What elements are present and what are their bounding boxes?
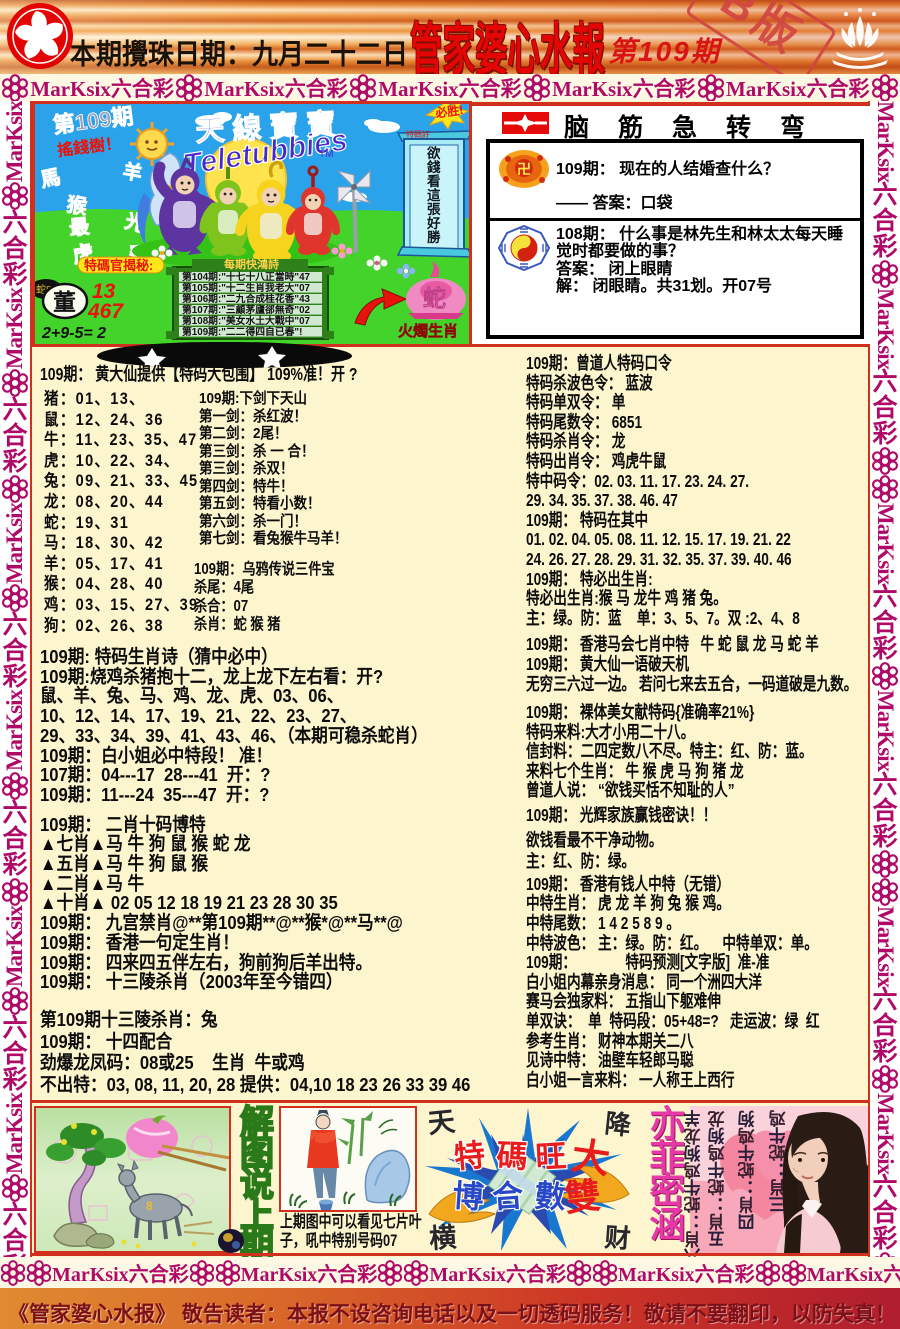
- svg-text:天: 天: [426, 1106, 456, 1139]
- svg-text:好: 好: [426, 215, 441, 231]
- svg-text:第106期:"二九合成桂花香"43: 第106期:"二九合成桂花香"43: [182, 292, 311, 305]
- svg-text:勝: 勝: [427, 229, 441, 245]
- svg-text:第108期:"美女水土大戰中"07: 第108期:"美女水土大戰中"07: [182, 314, 311, 327]
- svg-text:TM: TM: [319, 149, 333, 160]
- svg-text:特碼官揭秘:: 特碼官揭秘:: [84, 258, 153, 273]
- svg-text:最: 最: [68, 215, 91, 240]
- svg-text:第109期:"二二得四自已春"!: 第109期:"二二得四自已春"!: [182, 325, 302, 338]
- svg-text:财: 财: [604, 1222, 632, 1253]
- svg-text:旺: 旺: [535, 1138, 568, 1175]
- svg-text:合: 合: [491, 1178, 524, 1215]
- svg-text:2+9-5= 2: 2+9-5= 2: [41, 325, 106, 342]
- svg-text:數: 數: [534, 1178, 567, 1215]
- svg-text:錢: 錢: [427, 159, 441, 175]
- svg-text:欲: 欲: [426, 145, 441, 161]
- svg-text:雙: 雙: [563, 1174, 603, 1219]
- svg-text:特碼好: 特碼好: [406, 129, 430, 139]
- svg-text:特: 特: [453, 1137, 487, 1175]
- svg-text:8: 8: [146, 1199, 153, 1213]
- svg-text:每期快鴻詩: 每期快鴻詩: [224, 257, 279, 271]
- svg-text:卍: 卍: [517, 161, 531, 177]
- svg-text:張: 張: [427, 202, 441, 217]
- svg-text:這: 這: [427, 187, 441, 203]
- svg-text:看: 看: [426, 173, 441, 189]
- svg-text:第105期:"十二生肖我老大"07: 第105期:"十二生肖我老大"07: [182, 281, 311, 294]
- svg-text:火燭生肖: 火燭生肖: [398, 322, 458, 340]
- svg-text:蛇: 蛇: [423, 285, 446, 311]
- svg-text:羊: 羊: [121, 159, 144, 185]
- svg-text:第107期:"三顧茅廬郤無奇"02: 第107期:"三顧茅廬郤無奇"02: [182, 303, 311, 316]
- svg-text:467: 467: [87, 300, 124, 323]
- svg-text:降: 降: [603, 1108, 633, 1141]
- svg-text:董: 董: [53, 289, 76, 315]
- svg-text:碼: 碼: [496, 1138, 529, 1175]
- svg-text:第104期:"十七十八正當時"47: 第104期:"十七十八正當時"47: [182, 270, 311, 283]
- svg-text:横: 横: [428, 1222, 457, 1253]
- svg-text:博: 博: [452, 1178, 485, 1215]
